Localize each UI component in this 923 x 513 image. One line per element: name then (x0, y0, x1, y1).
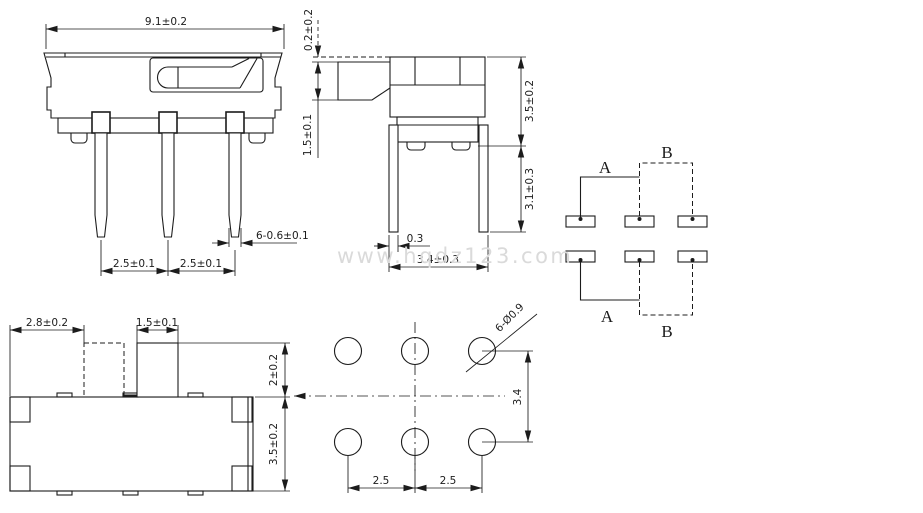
knob-position-alt (84, 343, 124, 397)
drawing-canvas: 9.1±0.2 6-0.6±0.1 2.5±0.1 2.5±0.1 (0, 0, 923, 513)
dim-hole-spec: 6-Ø0.9 (493, 301, 527, 335)
corner-bracket (232, 397, 252, 422)
terminal-pin (95, 133, 107, 237)
front-view: 9.1±0.2 6-0.6±0.1 2.5±0.1 2.5±0.1 (44, 16, 309, 276)
side-view: 0.2±0.2 1.5±0.1 3.5±0.2 3.1±0.3 0.3 3.4±… (302, 9, 536, 272)
slider-knob (158, 67, 241, 88)
pin-collar (226, 112, 244, 133)
pcb-hole (335, 429, 362, 456)
base-plate-side (397, 117, 478, 142)
contact-path-a-top (581, 177, 640, 219)
pin-collar (159, 112, 177, 133)
dim-pin-pitch-right: 2.5±0.1 (180, 258, 222, 270)
corner-bracket (10, 466, 30, 491)
dim-knob-top-gap: 0.2±0.2 (303, 9, 315, 51)
dim-travel: 2.8±0.2 (26, 317, 68, 329)
pin-collar (92, 112, 110, 133)
schematic-label-b-top: B (661, 143, 672, 162)
dim-knob-height: 1.5±0.1 (302, 114, 314, 156)
schematic-label-b-bottom: B (661, 322, 672, 341)
switch-body-side (390, 57, 485, 117)
terminal-pin (229, 133, 241, 237)
terminal-pin (162, 133, 174, 237)
dim-overall-width: 9.1±0.2 (145, 16, 187, 28)
circuit-schematic: A B A B (566, 143, 707, 341)
pcb-hole (335, 338, 362, 365)
switch-body-top (10, 397, 253, 491)
actuator-slot (150, 58, 263, 92)
dim-row-spacing: 3.4 (512, 388, 524, 405)
top-view: 2.8±0.2 1.5±0.1 2±0.2 3.5±0.2 (10, 317, 290, 495)
corner-bracket (232, 466, 252, 491)
contact-path-b-bottom (640, 262, 693, 315)
dim-pin-length: 3.1±0.3 (524, 168, 536, 210)
schematic-label-a-bottom: A (601, 307, 614, 326)
slider-knob-side (338, 62, 390, 100)
terminal-pin-side (389, 125, 398, 232)
contact-path-b-top (640, 163, 693, 216)
knob-position-on (137, 343, 178, 397)
terminal-pin-side (479, 125, 488, 232)
dim-knob-width: 1.5±0.1 (136, 317, 178, 329)
dim-pin-pitch-left: 2.5±0.1 (113, 258, 155, 270)
dim-pin-width: 6-0.6±0.1 (256, 230, 309, 242)
switch-body-outline (44, 53, 282, 118)
dim-pitch-left: 2.5 (373, 475, 390, 487)
watermark-text: www.hqdz123.com (337, 244, 573, 268)
dim-pitch-right: 2.5 (440, 475, 457, 487)
dim-body-height: 3.5±0.2 (524, 80, 536, 122)
dim-knob-protrusion: 2±0.2 (268, 354, 280, 386)
schematic-label-a-top: A (599, 158, 612, 177)
pcb-hole-layout: 6-Ø0.9 3.4 2.5 2.5 (294, 301, 537, 493)
contact-path-a-bottom (581, 260, 640, 300)
dim-body-depth: 3.5±0.2 (268, 423, 280, 465)
corner-bracket (10, 397, 30, 422)
technical-drawing-page: 9.1±0.2 6-0.6±0.1 2.5±0.1 2.5±0.1 (0, 0, 923, 513)
